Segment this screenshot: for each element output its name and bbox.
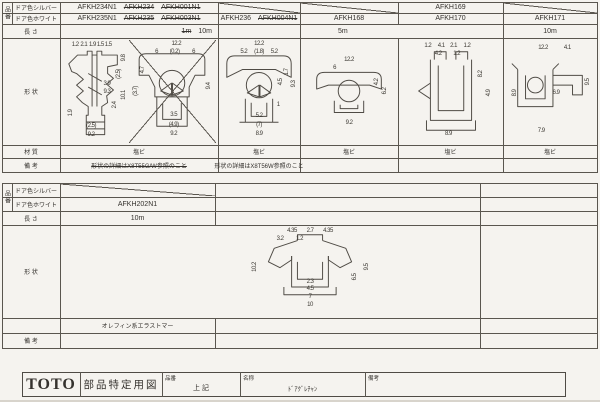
length-value-10m: 10m <box>503 24 597 38</box>
part-numbers-white-col2: AFKH236AFKH004N1 <box>218 13 300 24</box>
dimension-label: 1.2 <box>72 42 79 48</box>
row-label-door-silver: ドア色シルバー <box>12 2 60 13</box>
dimension-label: 8.2 <box>478 71 484 78</box>
dimension-label: 2.1 <box>450 43 457 49</box>
name-label: 名称 <box>243 374 254 382</box>
dimension-label: 6.5 <box>352 273 358 280</box>
dimension-label: 8.9 <box>256 131 263 137</box>
grid-line <box>2 348 598 349</box>
empty-cell-diagonal <box>503 3 597 13</box>
document-type: 部品特定用図 <box>80 372 162 397</box>
grid-line <box>597 183 598 348</box>
row-label-material: 材 質 <box>2 145 60 158</box>
row-label-length: 長 さ <box>2 24 60 38</box>
dimension-label: 4.35 <box>287 228 297 234</box>
dimension-label: 9.5 <box>585 79 591 86</box>
spec-sheet: 品番 ドア色シルバー ドア色ホワイト 長 さ 形 状 材 質 備 考 AFKH2… <box>0 0 600 402</box>
dimension-label: 1.2 <box>424 43 431 49</box>
material-value: 塩ビ <box>398 145 503 158</box>
dimension-label: 12.2 <box>344 57 354 63</box>
remarks-label: 備考 <box>368 374 379 382</box>
dimension-label: 9.3 <box>103 89 110 95</box>
part-number-struck: AFKH003N1 <box>161 15 200 22</box>
dimension-label: 5.2 <box>240 49 247 55</box>
part-numbers-silver-col1: AFKH234N1AFKH234AFKH001N1 <box>60 2 218 13</box>
dimension-label: 1.2 <box>464 43 471 49</box>
material-value: 塩ビ <box>218 145 300 158</box>
dimension-label: 7 <box>309 294 312 300</box>
profile-drawing-afkh236: 12.25.2(1.8)5.21.74.59.315.2(7)8.9 <box>219 40 299 141</box>
part-number-group-label: 品番 <box>2 2 12 24</box>
length-value-5m: 5m <box>300 24 503 38</box>
part-number-struck: 1m <box>182 28 192 35</box>
grid-line <box>2 172 598 173</box>
dimension-label: 6 <box>333 65 336 71</box>
dimension-label: 12.2 <box>254 41 264 47</box>
dimension-label: 8.9 <box>512 89 518 96</box>
dimension-label: 10 <box>307 302 313 308</box>
dimension-label: 6.2 <box>382 87 388 94</box>
length-value-col1: 1m10m <box>60 24 212 38</box>
dimension-label: 1.9 <box>89 42 96 48</box>
toto-logo-text: TOTO <box>26 376 76 394</box>
profile-drawing-afkh169-170: 1.24.12.11.24.21.28.24.98.9 <box>399 40 502 141</box>
dimension-label: 9.8 <box>121 55 127 62</box>
part-number: AFKH234N1 <box>78 4 117 11</box>
dimension-label: 3.9 <box>103 81 110 87</box>
grid-line <box>597 2 598 172</box>
remark: 形状の詳細はX8T56W参照のこと <box>218 158 300 172</box>
dimension-label: 4.1 <box>438 43 445 49</box>
dimension-label: 9.5 <box>364 264 370 271</box>
part-number-value: 上 記 <box>162 383 240 393</box>
part-number-afkh171: AFKH171 <box>503 13 597 24</box>
material-value-olefin: オレフィン系エラストマー <box>60 318 215 333</box>
remark-struck: 形状の詳細はX8T55G/W参照のこと <box>60 158 218 172</box>
part-number-group-text: 品番 <box>3 190 12 204</box>
dimension-label: 6.9 <box>553 90 560 96</box>
row-label-shape: 形 状 <box>2 38 60 145</box>
dimension-label: 12.2 <box>538 45 548 51</box>
empty-cell-diagonal <box>300 3 398 13</box>
dimension-label: 4.2 <box>435 51 442 57</box>
dimension-label: (1.8) <box>254 49 264 55</box>
dimension-label: 4.35 <box>323 228 333 234</box>
row-label-length: 長 さ <box>2 211 60 225</box>
part-number-afkh170: AFKH170 <box>398 13 503 24</box>
row-label-door-white: ドア色ホワイト <box>12 13 60 24</box>
part-number-label: 品番 <box>165 374 176 382</box>
length-value-10m: 10m <box>60 211 215 225</box>
dimension-label: 2.1 <box>80 42 87 48</box>
profile-drawing-afkh171: 12.24.19.56.98.97.9 <box>504 40 597 141</box>
dimension-label: 2.7 <box>307 228 314 234</box>
part-number-afkh202n1: AFKH202N1 <box>60 197 215 211</box>
row-label-remarks: 備 考 <box>2 158 60 172</box>
dimension-label: 3.2 <box>277 236 284 242</box>
dimension-label: 4.5 <box>278 79 284 86</box>
material-value: 塩ビ <box>60 145 218 158</box>
part-number-struck: AFKH235 <box>124 15 154 22</box>
part-number-group-text: 品番 <box>3 6 12 20</box>
grid-line <box>2 225 598 226</box>
part-number-struck: AFKH004N1 <box>258 15 297 22</box>
row-label-shape: 形 状 <box>2 225 60 318</box>
dimension-label: 5.2 <box>256 113 263 119</box>
empty-cell-diagonal <box>218 3 300 13</box>
document-type-text: 部品特定用図 <box>84 377 159 392</box>
part-number-group-label: 品番 <box>2 183 12 211</box>
part-number-afkh169: AFKH169 <box>398 2 503 13</box>
dimension-label: 9.3 <box>291 81 297 88</box>
dimension-label: 1.2 <box>453 51 460 57</box>
dimension-label: 1 <box>277 102 280 108</box>
part-number: AFKH235N1 <box>78 15 117 22</box>
toto-logo: TOTO <box>22 372 80 397</box>
dimension-label: 1.2 <box>296 236 303 242</box>
row-label-door-white: ドア色ホワイト <box>12 197 60 211</box>
part-numbers-white-col1: AFKH235N1AFKH235AFKH003N1 <box>60 13 218 24</box>
dimension-label: 10.2 <box>252 262 258 272</box>
part-number: 10m <box>198 28 212 35</box>
grid-line <box>215 318 216 348</box>
profile-drawing-afkh168: 12.264.26.29.2 <box>301 40 397 141</box>
material-value: 塩ビ <box>503 145 597 158</box>
name-value: ﾄﾞｱｸﾞﾚﾁｬﾝ <box>240 383 365 393</box>
row-label-remarks: 備 考 <box>2 333 60 348</box>
dimension-label: 4.1 <box>564 45 571 51</box>
grid-line <box>215 183 216 225</box>
material-value: 塩ビ <box>300 145 398 158</box>
dimension-label: 1.7 <box>284 69 290 76</box>
profile-drawing-afkh234: 1.22.11.91.51.59.8(2.5)10.12.43.99.31.9(… <box>62 40 128 141</box>
crossed-out-overlay <box>129 40 216 143</box>
part-number-block: 品番 上 記 <box>162 372 240 397</box>
grid-line <box>2 333 598 334</box>
dimension-label: 7.9 <box>538 128 545 134</box>
part-number-struck: AFKH234 <box>124 4 154 11</box>
part-number: AFKH236 <box>221 15 251 22</box>
dimension-label: 4.9 <box>486 89 492 96</box>
dimension-label: (2.5) <box>86 123 96 129</box>
dimension-label: 4.5 <box>307 286 314 292</box>
dimension-label: (2.5) <box>116 69 122 79</box>
dimension-label: 1.5 <box>105 42 112 48</box>
dimension-label: 9.2 <box>346 120 353 126</box>
remarks-block: 備考 <box>365 372 566 397</box>
row-label-material-blank <box>2 318 60 333</box>
grid-line <box>480 183 481 348</box>
dimension-label: 2.3 <box>307 279 314 285</box>
profile-drawing-afkh202n1: 4.352.74.353.21.210.29.56.52.34.5710 <box>235 227 385 316</box>
empty-cell-diagonal <box>60 184 215 196</box>
part-number-struck: AFKH001N1 <box>161 4 200 11</box>
row-label-door-silver: ドア色シルバー <box>12 183 60 197</box>
name-block: 名称 ﾄﾞｱｸﾞﾚﾁｬﾝ <box>240 372 365 397</box>
dimension-label: 8.9 <box>445 131 452 137</box>
dimension-label: (7) <box>256 122 262 128</box>
dimension-label: 9.2 <box>88 132 95 138</box>
dimension-label: 1.9 <box>68 109 74 116</box>
dimension-label: 5.2 <box>271 49 278 55</box>
dimension-label: 1.5 <box>97 42 104 48</box>
dimension-label: 10.1 <box>121 90 127 100</box>
dimension-label: 2.4 <box>112 101 118 108</box>
dimension-label: 4.2 <box>374 79 380 86</box>
part-number-afkh168: AFKH168 <box>300 13 398 24</box>
